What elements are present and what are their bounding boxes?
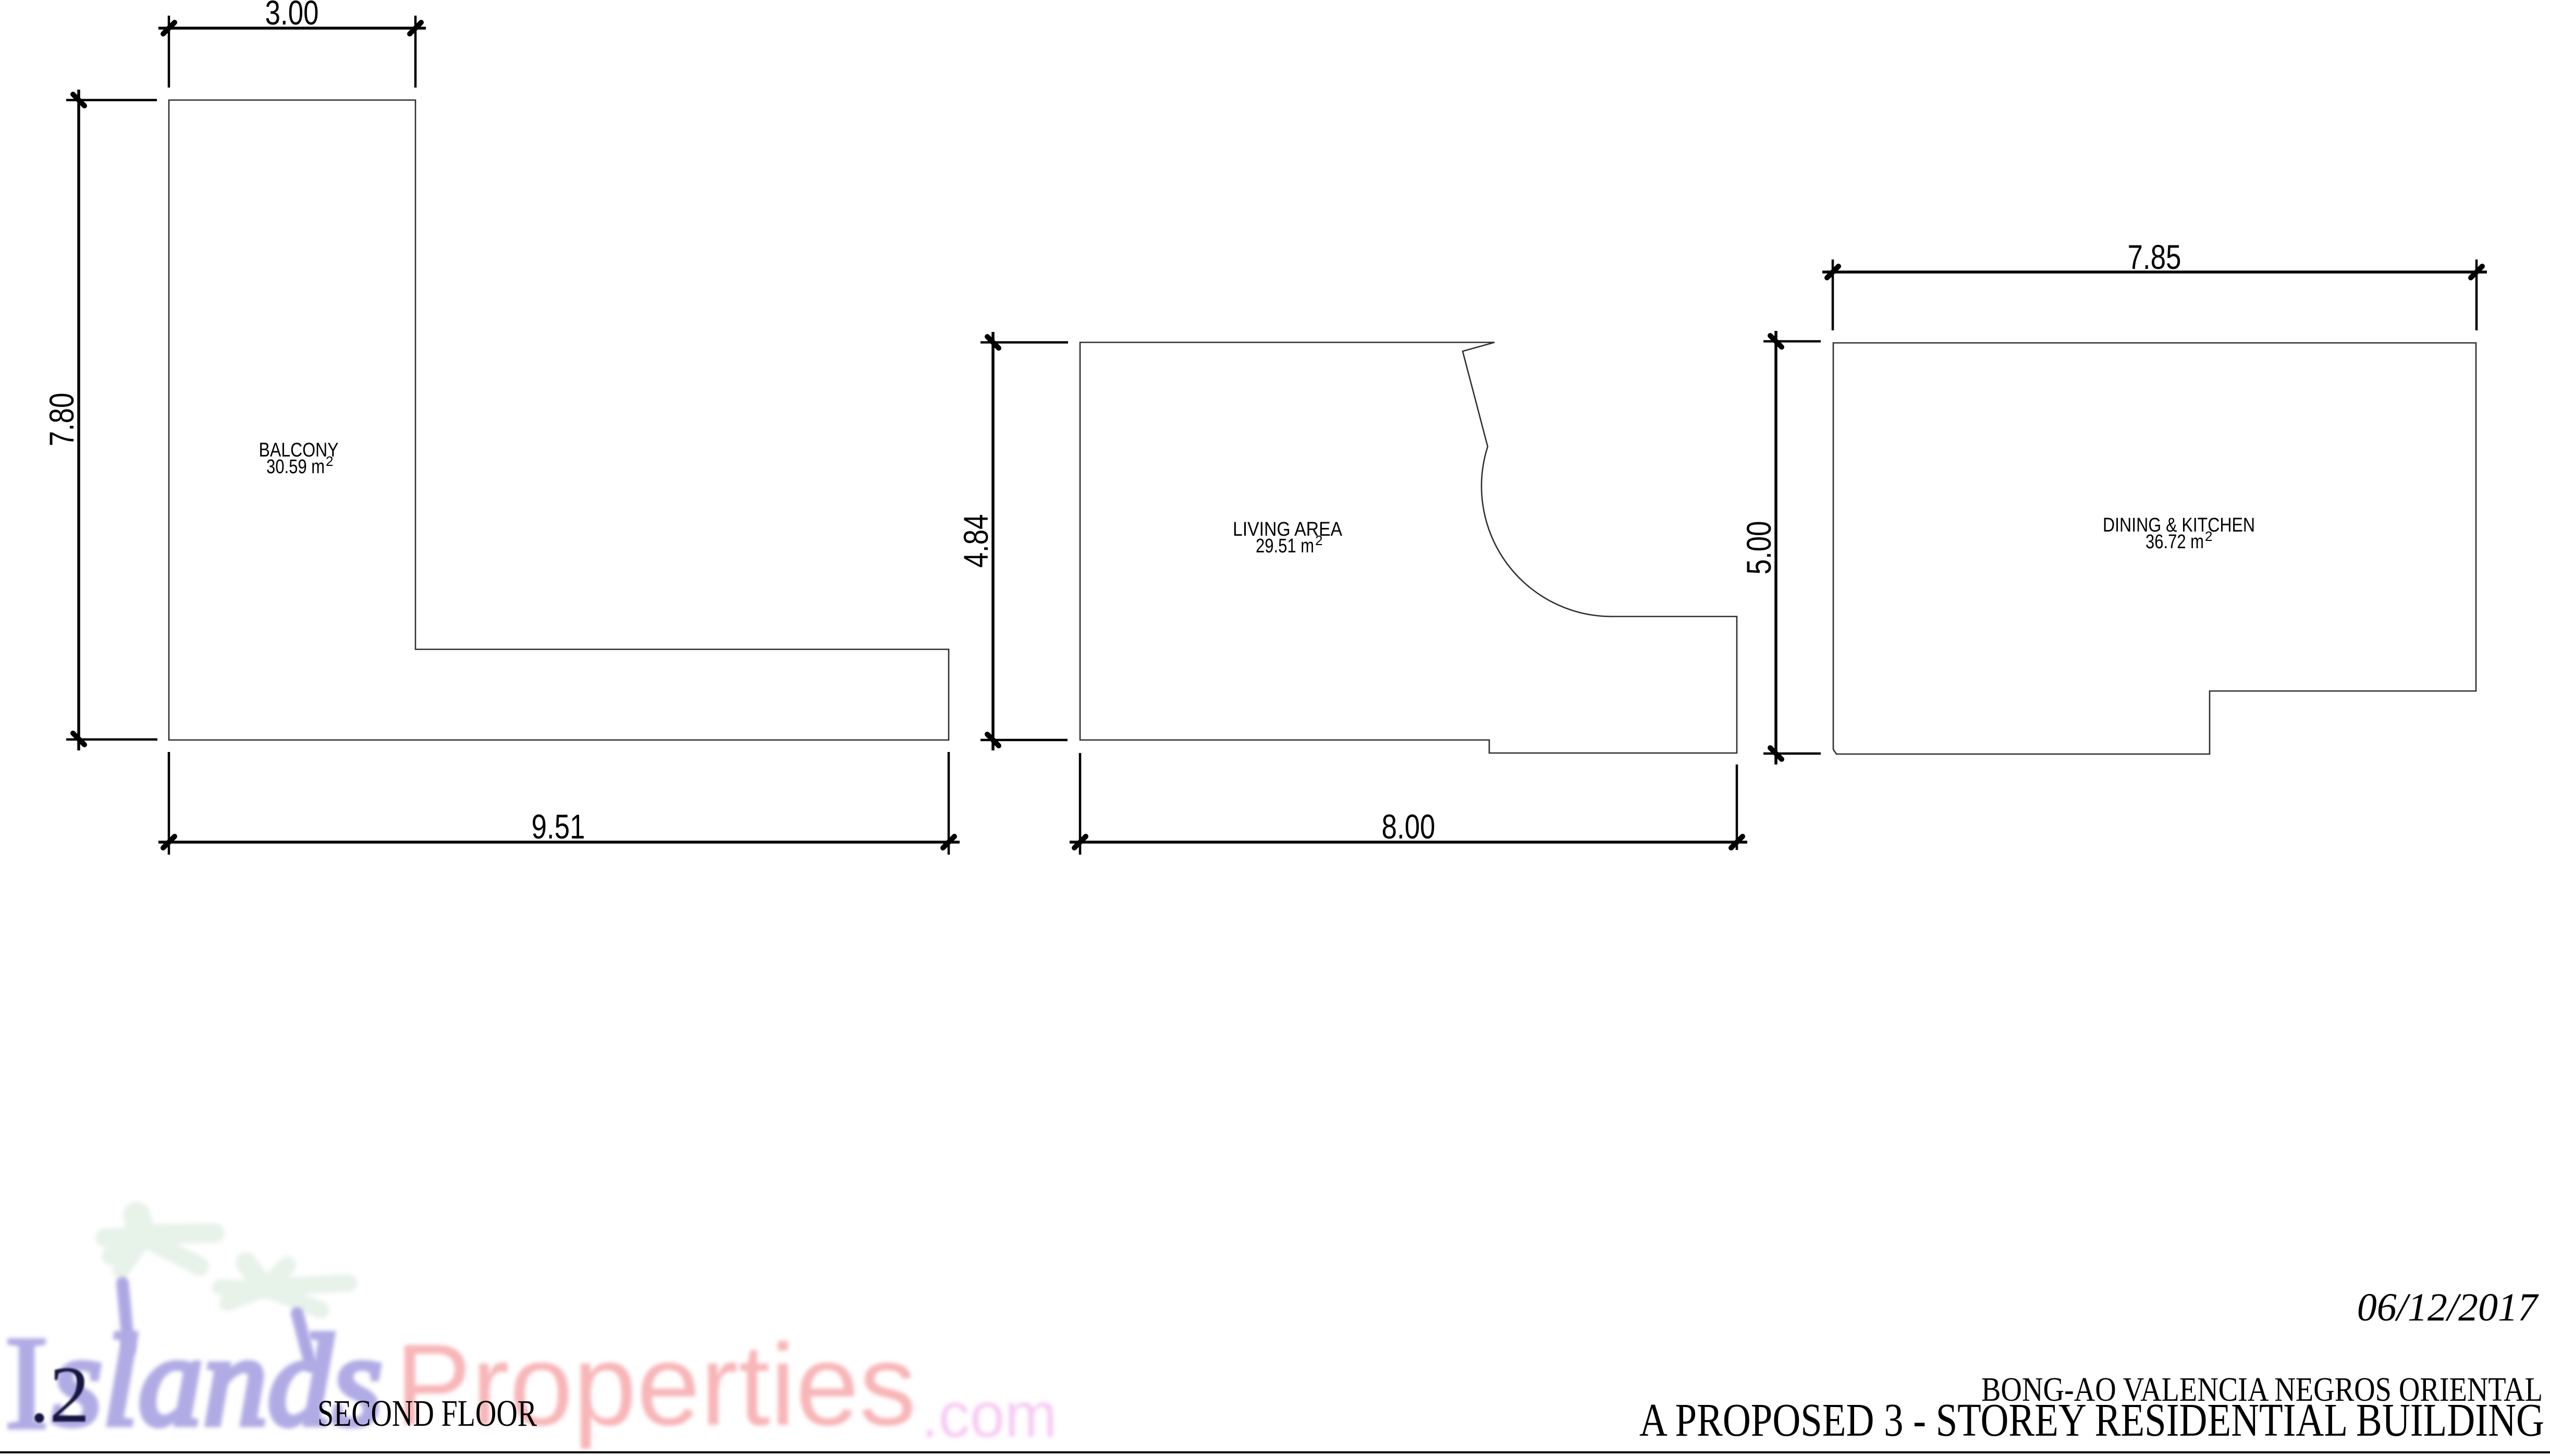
svg-text:.com: .com xyxy=(921,1379,1057,1450)
svg-text:7.85: 7.85 xyxy=(2128,238,2181,276)
svg-text:2: 2 xyxy=(1315,533,1322,548)
svg-text:4.84: 4.84 xyxy=(957,514,995,568)
svg-text:9.51: 9.51 xyxy=(532,807,585,846)
svg-text:.2: .2 xyxy=(29,1350,90,1439)
svg-text:30.59 m: 30.59 m xyxy=(266,456,325,478)
svg-text:06/12/2017: 06/12/2017 xyxy=(2357,1286,2539,1329)
svg-text:2: 2 xyxy=(2205,528,2212,544)
svg-text:SECOND FLOOR: SECOND FLOOR xyxy=(317,1392,537,1434)
svg-text:5.00: 5.00 xyxy=(1739,521,1778,575)
svg-text:7.80: 7.80 xyxy=(42,393,81,447)
svg-text:8.00: 8.00 xyxy=(1382,807,1436,846)
svg-text:A PROPOSED 3 - STOREY RESIDENT: A PROPOSED 3 - STOREY RESIDENTIAL BUILDI… xyxy=(1639,1395,2544,1446)
svg-text:29.51 m: 29.51 m xyxy=(1256,535,1314,557)
svg-text:3.00: 3.00 xyxy=(265,0,319,32)
svg-text:2: 2 xyxy=(326,453,333,469)
svg-text:36.72 m: 36.72 m xyxy=(2146,531,2204,553)
